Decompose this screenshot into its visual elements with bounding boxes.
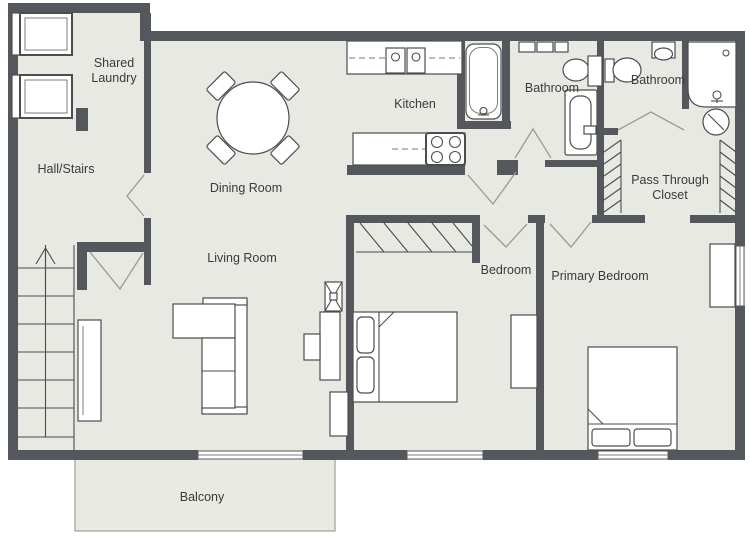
label-balcony: Balcony xyxy=(180,490,225,504)
primary-bedroom-window xyxy=(598,451,668,459)
media-unit-icon xyxy=(325,282,342,311)
label-bathroom-2: Bathroom xyxy=(631,73,685,87)
wash-basin-icon xyxy=(652,42,675,60)
kitchen-counter-bottom xyxy=(353,133,465,165)
dining-set xyxy=(206,71,300,165)
floor-plan-canvas: Shared Laundry Hall/Stairs Dining Room K… xyxy=(0,0,750,539)
kitchen-sink-icon xyxy=(386,48,405,73)
dining-table-icon xyxy=(217,82,289,154)
label-hall-stairs: Hall/Stairs xyxy=(38,162,95,176)
stove-icon xyxy=(426,133,465,165)
pillow-icon xyxy=(592,429,630,446)
bedroom-window xyxy=(407,451,483,459)
console-table-icon xyxy=(78,320,101,421)
double-bed-icon xyxy=(353,312,457,402)
pillow-icon xyxy=(634,429,671,446)
label-dining-room: Dining Room xyxy=(210,181,282,195)
wardrobe-icon xyxy=(710,244,735,307)
dresser-icon xyxy=(511,315,537,388)
pillow-icon xyxy=(357,357,374,393)
label-primary-bedroom: Primary Bedroom xyxy=(551,269,648,283)
side-window xyxy=(736,246,744,306)
shower-icon xyxy=(688,42,736,107)
washer-icon xyxy=(12,13,72,55)
double-bed-icon xyxy=(588,347,677,450)
label-bedroom: Bedroom xyxy=(481,263,532,277)
tv-icon xyxy=(304,334,320,360)
label-bathroom-1: Bathroom xyxy=(525,81,579,95)
kitchen-counter-top xyxy=(347,41,462,74)
towel-rack-icon xyxy=(519,42,568,52)
label-shared-laundry-2: Laundry xyxy=(91,71,137,85)
label-closet-2: Closet xyxy=(652,188,688,202)
toilet-icon xyxy=(565,90,597,155)
bookcase-icon xyxy=(330,392,348,436)
kitchen-sink-icon xyxy=(407,48,425,73)
bathtub-icon xyxy=(466,44,501,119)
dryer-icon xyxy=(12,75,72,118)
label-kitchen: Kitchen xyxy=(394,97,436,111)
floor-plan: Shared Laundry Hall/Stairs Dining Room K… xyxy=(0,0,750,539)
label-shared-laundry-1: Shared xyxy=(94,56,134,70)
label-closet-1: Pass Through xyxy=(631,173,709,187)
balcony-window xyxy=(198,451,303,459)
laundry-hamper-icon xyxy=(703,109,729,135)
tv-console-icon xyxy=(320,312,340,380)
label-living-room: Living Room xyxy=(207,251,276,265)
pillow-icon xyxy=(357,317,374,353)
